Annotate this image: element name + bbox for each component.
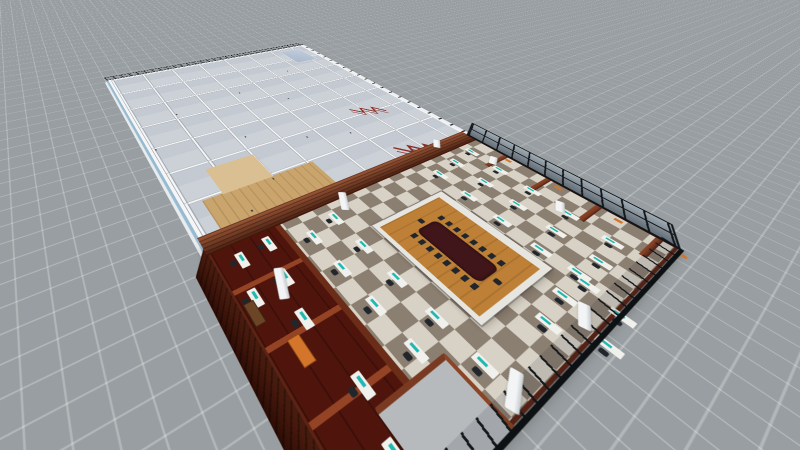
conference-chair (417, 218, 426, 224)
3d-viewport[interactable] (0, 0, 800, 450)
conference-chair (492, 278, 503, 286)
office-chairs (257, 244, 265, 251)
furniture-specks (287, 71, 289, 72)
white-column (433, 139, 440, 148)
orange-desk[interactable] (287, 333, 317, 368)
conference-room[interactable] (372, 191, 552, 325)
wood-fin-wall (578, 205, 602, 222)
wood-fin-wall (527, 178, 551, 192)
staircase-symbol-1[interactable] (345, 101, 397, 126)
